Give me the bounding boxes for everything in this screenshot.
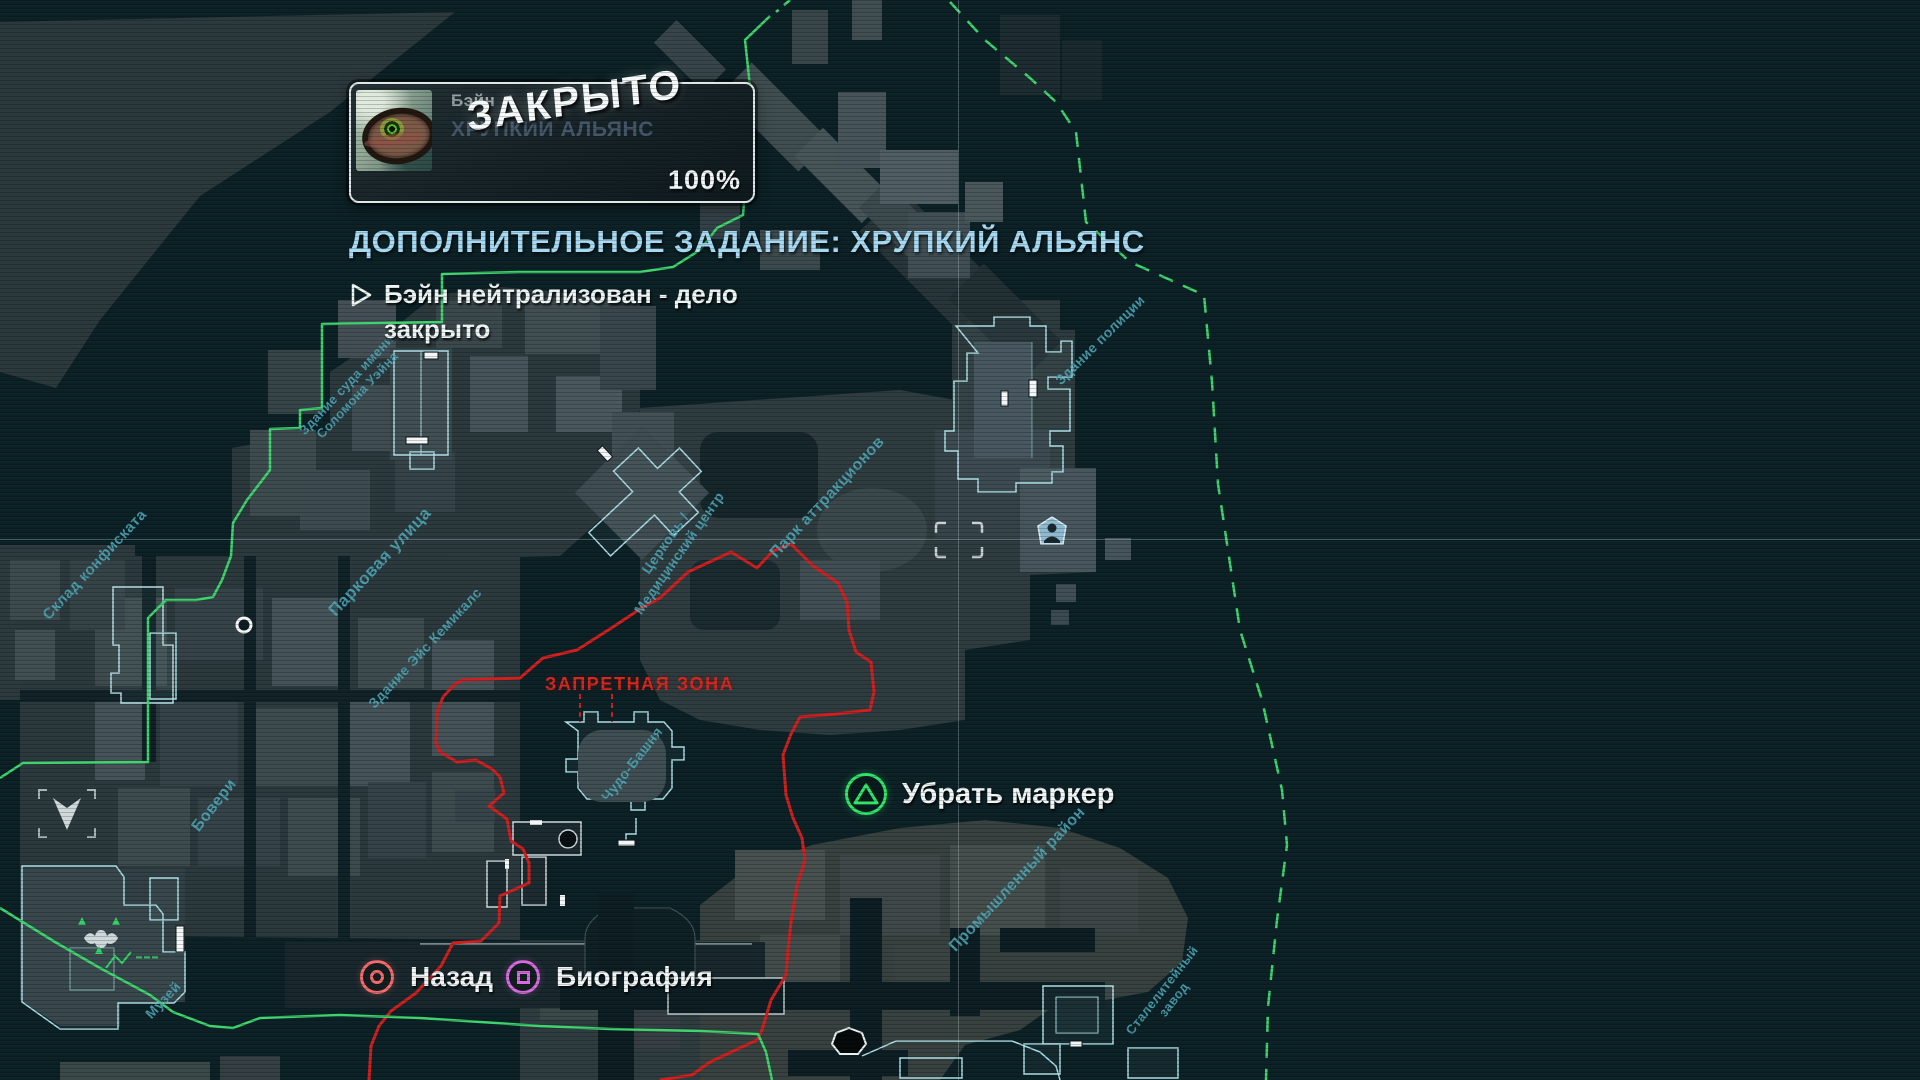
ps-triangle-button-icon [845,773,887,815]
gate-hexagon-icon [832,1028,866,1054]
city-map[interactable] [0,0,1920,1080]
mission-title: ДОПОЛНИТЕЛЬНОЕ ЗАДАНИЕ: ХРУПКИЙ АЛЬЯНС [349,224,1145,260]
back-button[interactable]: Назад [360,960,493,994]
arkham-city-map-screen: Склад конфиската Парковая улица Здание Э… [0,0,1920,1080]
ps-square-button-icon [506,960,540,994]
objective-text: Бэйн нейтрализован - дело закрыто [384,277,738,347]
remove-marker-label: Убрать маркер [902,778,1114,811]
courthouse-outline [394,351,448,469]
objective-bullet-icon [350,282,374,308]
mission-progress: 100% [668,165,741,196]
objective-item: Бэйн нейтрализован - дело закрыто [350,277,738,347]
ps-circle-button-icon [360,960,394,994]
bane-eye-portrait [356,90,432,171]
remove-marker-button[interactable]: Убрать маркер [845,773,1114,815]
back-label: Назад [410,961,493,993]
restricted-zone-label: ЗАПРЕТНАЯ ЗОНА [545,674,734,695]
mission-card[interactable]: Бэйн ХРУПКИЙ АЛЬЯНС ЗАКРЫТО 100% [349,82,755,203]
biography-label: Биография [556,961,713,993]
waypoint-dot-icon [237,618,251,632]
biography-button[interactable]: Биография [506,960,713,994]
